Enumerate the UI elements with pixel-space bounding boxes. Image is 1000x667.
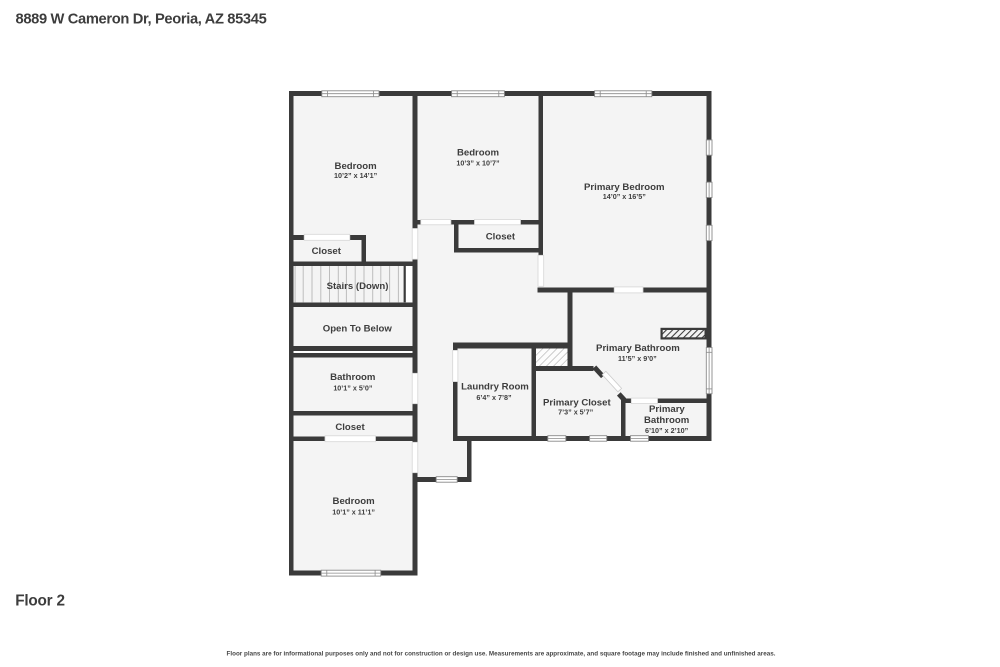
svg-text:Bathroom: Bathroom (330, 372, 375, 383)
svg-text:Floor 2: Floor 2 (15, 593, 65, 610)
svg-text:10’1” x 5’0”: 10’1” x 5’0” (333, 383, 373, 392)
svg-text:14’0” x 16’5”: 14’0” x 16’5” (603, 192, 647, 201)
svg-text:Primary: Primary (649, 404, 685, 415)
svg-text:Bedroom: Bedroom (457, 147, 499, 158)
svg-text:11’5” x 9’0”: 11’5” x 9’0” (618, 354, 657, 363)
svg-text:Bedroom: Bedroom (333, 496, 375, 507)
svg-text:10’1” x 11’1”: 10’1” x 11’1” (332, 508, 375, 517)
svg-text:Primary Bathroom: Primary Bathroom (596, 343, 680, 354)
svg-text:6’10” x 2’10”: 6’10” x 2’10” (645, 426, 689, 435)
svg-text:Stairs (Down): Stairs (Down) (327, 281, 389, 292)
svg-text:Bathroom: Bathroom (644, 415, 689, 426)
svg-text:8889 W Cameron Dr, Peoria, AZ: 8889 W Cameron Dr, Peoria, AZ 85345 (16, 11, 267, 27)
svg-text:10’2” x 14’1”: 10’2” x 14’1” (334, 171, 378, 180)
svg-text:Closet: Closet (312, 246, 342, 257)
svg-text:Closet: Closet (335, 422, 365, 433)
svg-text:10’3” x 10’7”: 10’3” x 10’7” (456, 159, 500, 168)
svg-text:6’4” x 7’8”: 6’4” x 7’8” (476, 393, 512, 402)
svg-text:Closet: Closet (486, 232, 516, 243)
svg-text:Laundry Room: Laundry Room (461, 382, 529, 393)
svg-text:Floor plans are for informatio: Floor plans are for informational purpos… (227, 650, 776, 657)
svg-text:7’3” x 5’7”: 7’3” x 5’7” (558, 408, 594, 417)
svg-text:Open To Below: Open To Below (323, 323, 393, 334)
